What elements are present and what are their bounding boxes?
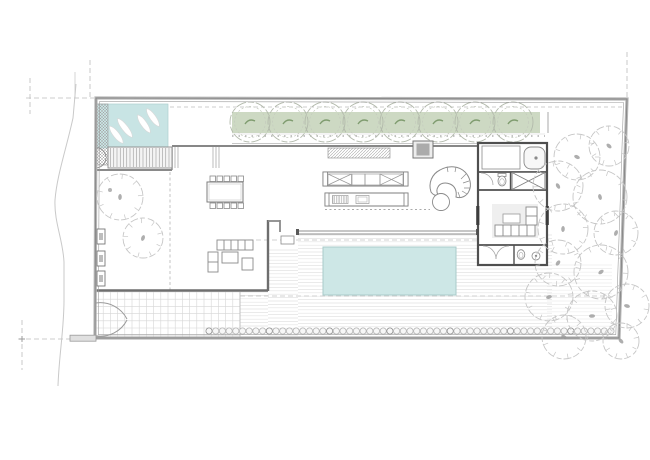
hedge-row xyxy=(206,328,614,334)
living-sofa-set xyxy=(208,240,253,272)
entry xyxy=(96,147,219,168)
shade-pergola xyxy=(328,148,390,158)
entry-threshold xyxy=(175,147,219,168)
side-table xyxy=(433,194,450,211)
entry-hatch-strip xyxy=(97,104,108,165)
coffee-table xyxy=(222,252,238,263)
kitchen-island-lower xyxy=(325,193,408,206)
dining-table xyxy=(207,182,243,202)
wall-end-cap xyxy=(70,335,96,341)
west-door-opening xyxy=(476,206,479,225)
bedroom-wing xyxy=(476,143,549,265)
fireplace xyxy=(413,141,433,158)
toilet xyxy=(498,174,506,187)
wall-pilasters xyxy=(97,229,105,286)
courtyard-trees xyxy=(97,174,163,258)
site-plan-svg xyxy=(0,0,650,460)
sofa-back-row xyxy=(217,240,253,250)
floor-plan xyxy=(0,0,650,460)
courtyard-column xyxy=(108,188,112,192)
armchair xyxy=(242,258,253,270)
planter-strip xyxy=(230,102,548,142)
kitchen xyxy=(323,172,408,206)
swimming-pool xyxy=(323,247,456,295)
curved-lounge xyxy=(430,167,470,211)
dining-area xyxy=(207,176,244,209)
driveway-gate xyxy=(96,303,127,337)
bedroom-table xyxy=(503,214,520,223)
